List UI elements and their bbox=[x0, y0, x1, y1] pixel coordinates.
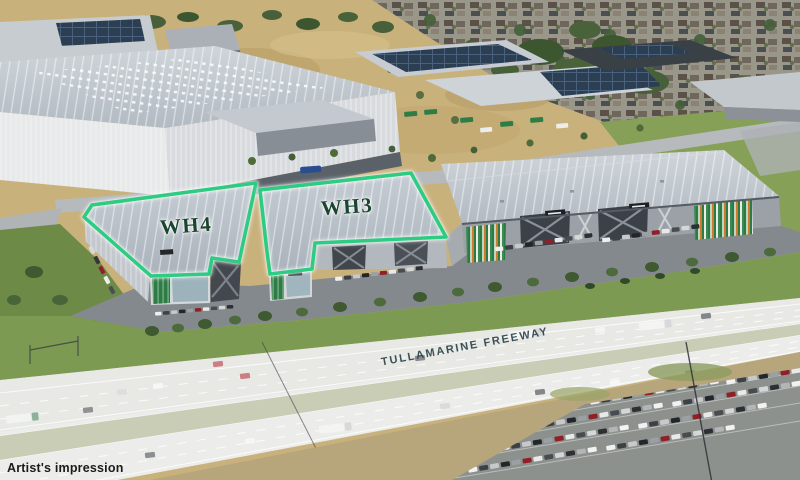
wh3-label: WH3 bbox=[320, 193, 374, 222]
wh4-label: WH4 bbox=[159, 212, 213, 241]
artists-impression-label: Artist's impression bbox=[7, 461, 124, 475]
wh3-outline bbox=[260, 173, 446, 274]
aerial-render: WH4 WH3 TULLAMARINE FREEWAY Artist's imp… bbox=[0, 0, 800, 480]
annotation-overlay bbox=[0, 0, 800, 480]
